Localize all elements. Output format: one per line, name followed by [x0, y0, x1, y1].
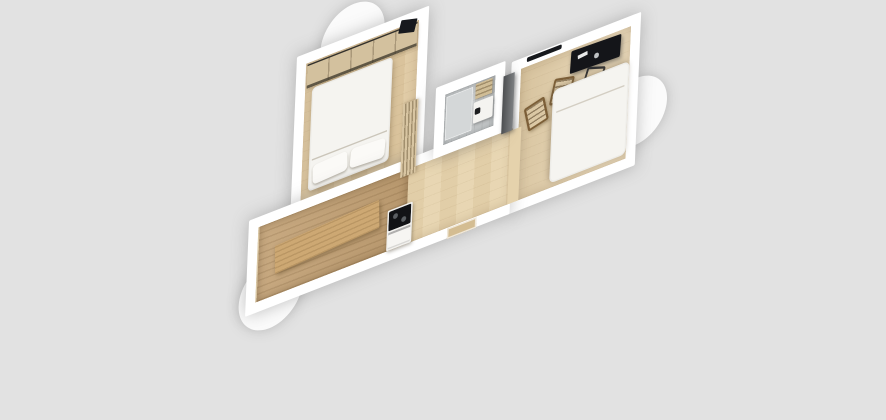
desk-lamp [594, 52, 599, 59]
faucet-icon [475, 107, 481, 115]
living-room [505, 12, 641, 216]
living-room-floor [516, 26, 632, 201]
floorplan-canvas [0, 0, 886, 420]
sink [473, 95, 493, 124]
pillow [313, 150, 348, 185]
bathroom-floor [443, 75, 495, 145]
shower-area [445, 87, 473, 141]
desk-items [578, 51, 588, 59]
apartment-floorplan [230, 0, 675, 349]
pillow [349, 137, 385, 168]
wooden-chair [524, 96, 549, 132]
kitchen-unit [386, 201, 413, 251]
